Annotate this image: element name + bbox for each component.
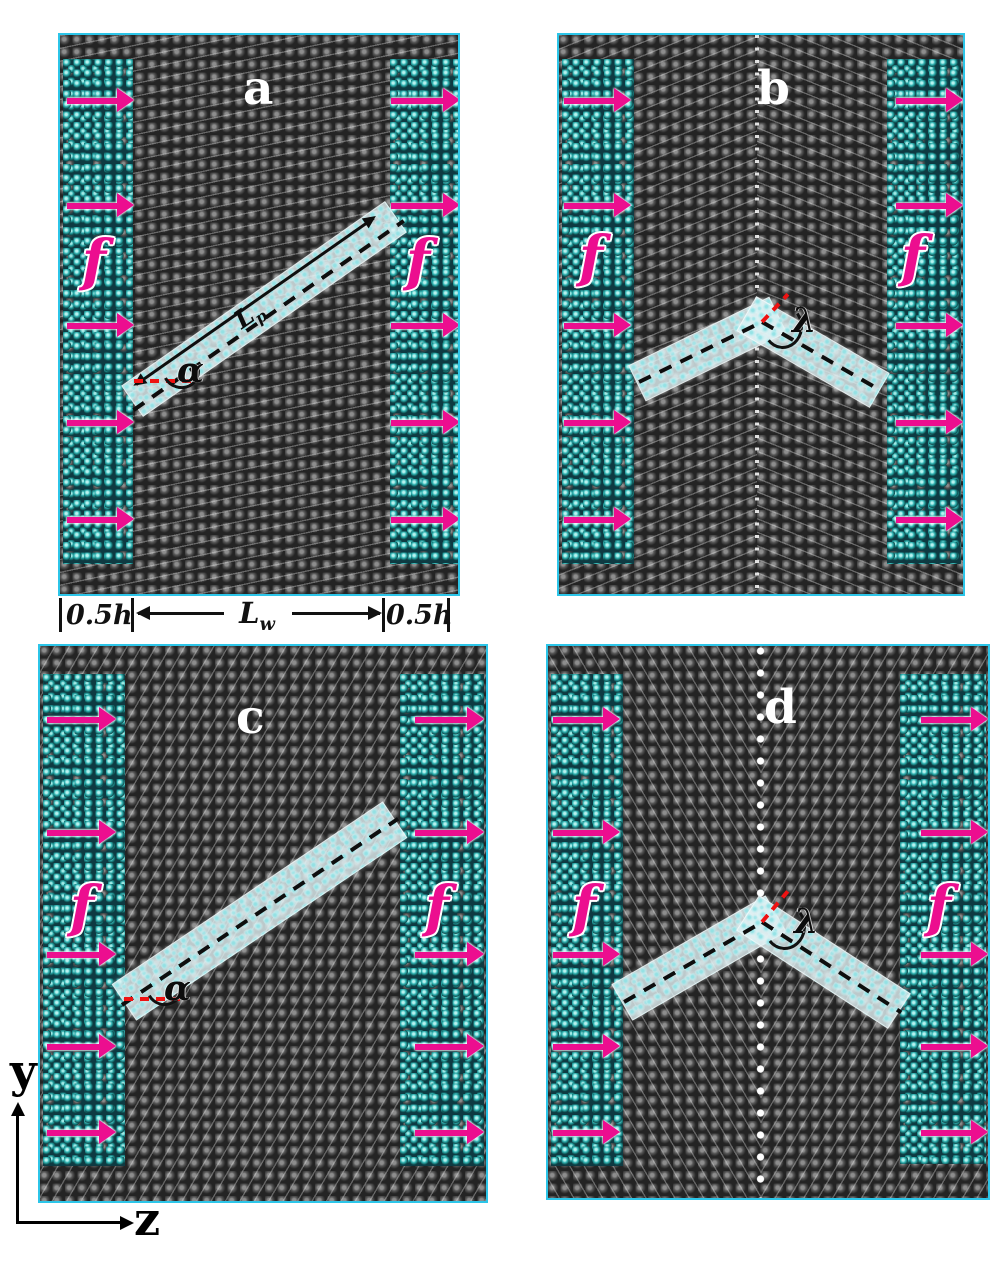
force-label-left: f — [579, 229, 603, 285]
force-arrow-icon — [895, 193, 963, 218]
force-arrow-icon — [390, 410, 460, 435]
angle-label: α — [164, 971, 191, 1006]
force-arrow-icon — [895, 410, 963, 435]
force-arrow-icon — [563, 507, 631, 532]
panel-letter: a — [243, 65, 273, 112]
force-arrow-icon — [920, 1120, 988, 1145]
figure-canvas: Lp α f f a λ f f b — [0, 0, 1000, 1278]
axis-y-label: y — [10, 1048, 37, 1094]
panel-c: α f f c — [38, 644, 488, 1203]
force-arrow-icon — [414, 820, 484, 845]
force-arrow-icon — [414, 707, 484, 732]
force-arrow-icon — [46, 707, 116, 732]
force-label-left: f — [572, 879, 596, 935]
force-arrow-icon — [552, 942, 620, 967]
axis-y-arrow — [16, 1114, 19, 1224]
panel-a: Lp α f f a — [58, 33, 460, 596]
force-arrow-icon — [66, 88, 134, 113]
force-arrow-icon — [46, 942, 116, 967]
force-arrow-icon — [414, 1120, 484, 1145]
angle-label: λ — [794, 904, 819, 939]
force-arrow-icon — [414, 942, 484, 967]
force-arrow-icon — [414, 1034, 484, 1059]
force-arrow-icon — [895, 313, 963, 338]
scale-length-label: Lw — [226, 598, 288, 635]
force-arrow-icon — [563, 410, 631, 435]
panel-b: λ f f b — [557, 33, 965, 596]
force-arrow-icon — [552, 1120, 620, 1145]
force-arrow-icon — [46, 1120, 116, 1145]
force-arrow-icon — [66, 507, 134, 532]
force-label-left: f — [70, 879, 94, 935]
scale-left-label: 0.5h — [66, 601, 126, 631]
force-arrow-icon — [552, 1034, 620, 1059]
force-arrow-icon — [563, 313, 631, 338]
force-arrow-icon — [46, 1034, 116, 1059]
force-arrow-icon — [390, 507, 460, 532]
force-label-right: f — [406, 233, 430, 289]
force-arrow-icon — [46, 820, 116, 845]
scale-right-label: 0.5h — [386, 601, 444, 631]
force-label-right: f — [927, 879, 951, 935]
force-arrow-icon — [552, 820, 620, 845]
force-arrow-icon — [390, 193, 460, 218]
force-label-left: f — [82, 233, 106, 289]
force-label-right: f — [425, 879, 449, 935]
axis-z-arrow-icon — [120, 1216, 134, 1230]
scale-tick — [382, 598, 385, 632]
force-arrows-left — [563, 35, 631, 594]
force-arrows-right — [895, 35, 963, 594]
axis-z-label: z — [134, 1196, 160, 1242]
force-arrow-icon — [552, 707, 620, 732]
axis-z-arrow — [16, 1221, 122, 1224]
force-label-right: f — [901, 229, 925, 285]
force-arrow-icon — [895, 88, 963, 113]
force-arrows-left — [66, 35, 134, 594]
force-arrow-icon — [920, 820, 988, 845]
panel-letter: b — [757, 65, 790, 112]
force-arrow-icon — [920, 707, 988, 732]
angle-label: α — [177, 353, 204, 388]
force-arrow-icon — [563, 193, 631, 218]
force-arrow-icon — [66, 313, 134, 338]
scale-arrow-right — [292, 612, 380, 615]
force-arrow-icon — [66, 410, 134, 435]
scale-arrow-left — [138, 612, 224, 615]
panel-letter: c — [236, 694, 265, 741]
scale-tick — [59, 598, 62, 632]
force-arrow-icon — [66, 193, 134, 218]
force-arrow-icon — [390, 88, 460, 113]
force-arrow-icon — [895, 507, 963, 532]
panel-letter: d — [764, 684, 797, 731]
force-arrow-icon — [390, 313, 460, 338]
force-arrow-icon — [920, 1034, 988, 1059]
panel-d: λ f f d — [546, 644, 990, 1200]
angle-label: λ — [792, 303, 817, 338]
force-arrows-right — [390, 35, 460, 594]
force-arrow-icon — [920, 942, 988, 967]
force-arrow-icon — [563, 88, 631, 113]
